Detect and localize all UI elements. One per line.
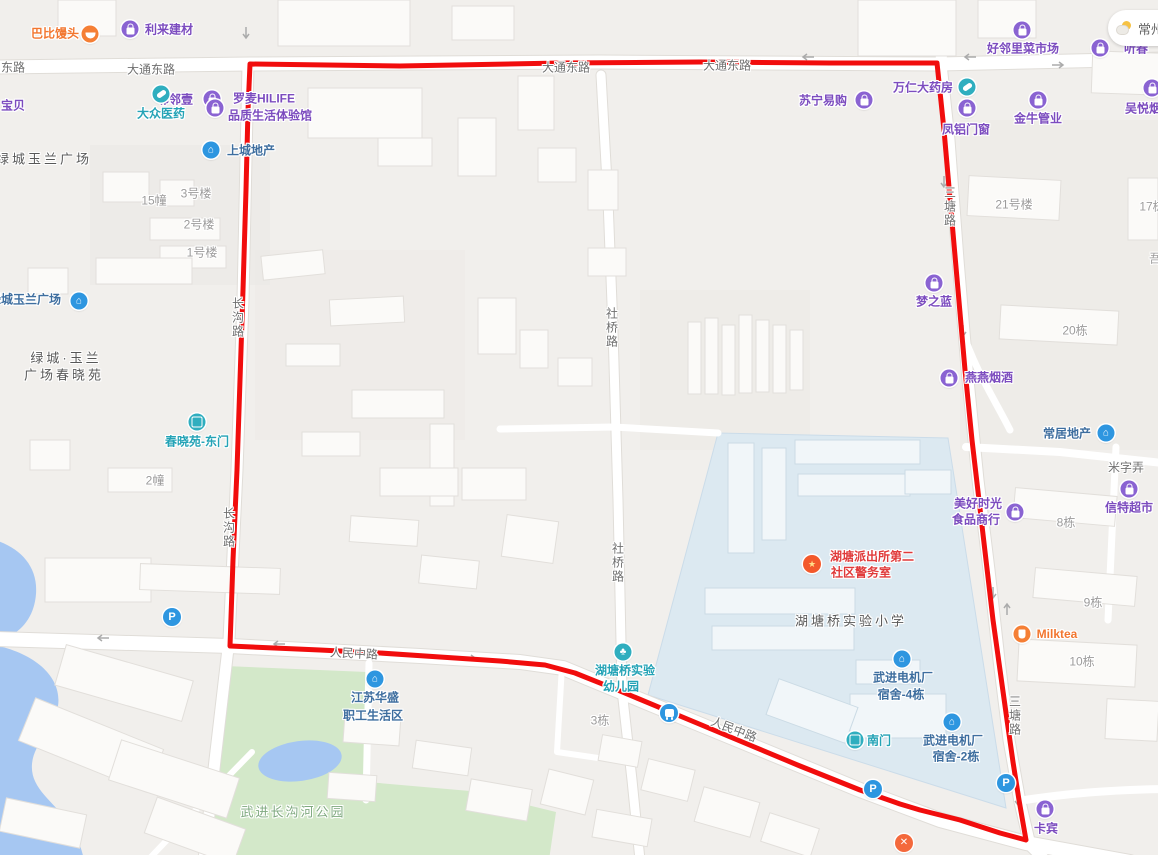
poi-luomai-2-label[interactable]: 品质生活体验馆 [228, 107, 312, 124]
poi-lvcheng-plaza-2-label[interactable]: 绿城玉兰广场 [0, 291, 61, 308]
road-datong-2-label: 大通东路 [542, 59, 590, 76]
road-santang-1-label: 三塘路 [942, 186, 959, 228]
poi-dianji-2-1-label[interactable]: 武进电机厂 [923, 732, 983, 749]
haolinli-market-icon[interactable] [1014, 22, 1031, 39]
road-donglu-label: 东路 [1, 59, 25, 76]
bldg-9dong-label: 9栋 [1084, 594, 1103, 611]
poi-kindergarten-1-label[interactable]: 湖塘桥实验 [595, 662, 655, 679]
poi-changju-estate-label[interactable]: 常居地产 [1043, 425, 1091, 442]
bldg-1haolou-label: 1号楼 [187, 244, 218, 261]
poi-suning-label[interactable]: 苏宁易购 [799, 92, 847, 109]
road-changgou-1-label: 长沟路 [230, 297, 247, 339]
poi-fenglv-label[interactable]: 凤铝门窗 [942, 121, 990, 138]
road-changgou-2-label: 长沟路 [221, 507, 238, 549]
lvcheng-plaza-icon[interactable]: ⌂ [71, 293, 88, 310]
poi-meihao-1-label[interactable]: 美好时光 [954, 495, 1002, 512]
road-datong-3-label: 大通东路 [703, 57, 751, 74]
weather-sun-cloud-icon [1117, 21, 1133, 35]
bldg-21haolou-label: 21号楼 [995, 196, 1032, 213]
dazhong-pharmacy-icon[interactable] [153, 86, 170, 103]
bldg-10dong-label: 10栋 [1069, 653, 1094, 670]
area-lvcheng-plaza-label: 绿城玉兰广场 [0, 149, 92, 168]
meihao-icon[interactable] [1007, 504, 1024, 521]
suning-icon[interactable] [856, 92, 873, 109]
shangcheng-estate-icon[interactable]: ⌂ [203, 142, 220, 159]
poi-dianji-4-2-label[interactable]: 宿舍-4栋 [878, 686, 925, 703]
yanyan-icon[interactable] [941, 370, 958, 387]
luomai-icon[interactable] [207, 100, 224, 117]
area-changgou-park-label: 武进长沟河公园 [240, 802, 345, 821]
wuyue-icon[interactable] [1144, 80, 1158, 97]
label-layer: 东路大通东路大通东路大通东路长沟路长沟路社桥路社桥路三塘路三塘路人民中路人民中路… [0, 0, 1158, 855]
area-lvcheng-chunxiao-2-label: 广场春晓苑 [24, 365, 104, 384]
poi-yanyan-label[interactable]: 燕燕烟酒 [965, 369, 1013, 386]
bldg-20dong-label: 20栋 [1062, 322, 1087, 339]
parking-2-icon[interactable]: P [864, 780, 882, 798]
bldg-2zhuang-label: 2幢 [146, 472, 165, 489]
south-gate-icon[interactable] [847, 732, 864, 749]
bldg-17dong-label: 17栋 [1139, 198, 1158, 215]
weather-widget[interactable]: 常州 [1108, 10, 1158, 46]
tingchun-icon[interactable] [1092, 40, 1109, 57]
road-sheqiao-1-label: 社桥路 [604, 307, 621, 349]
poi-police-2-label[interactable]: 社区警务室 [831, 564, 891, 581]
poi-dianji-2-2-label[interactable]: 宿舍-2栋 [933, 748, 980, 765]
bldg-8dong-label: 8栋 [1057, 514, 1076, 531]
road-sheqiao-2-label: 社桥路 [610, 542, 627, 584]
mengzhilan-icon[interactable] [926, 275, 943, 292]
poi-dianji-4-1-label[interactable]: 武进电机厂 [873, 669, 933, 686]
poi-haolinli-market-label[interactable]: 好邻里菜市场 [987, 40, 1059, 57]
xinte-super-icon[interactable] [1121, 481, 1138, 498]
lilai-jiancai-icon[interactable] [122, 21, 139, 38]
parking-3-icon[interactable]: P [997, 774, 1015, 792]
bus-stop-icon[interactable] [660, 704, 678, 722]
kindergarten-icon[interactable]: ♣ [615, 644, 632, 661]
bldg-wu-label: 吾 [1149, 250, 1158, 267]
police-badge-icon[interactable]: ★ [803, 555, 821, 573]
map-canvas[interactable]: 东路大通东路大通东路大通东路长沟路长沟路社桥路社桥路三塘路三塘路人民中路人民中路… [0, 0, 1158, 855]
kabin-icon[interactable] [1037, 801, 1054, 818]
poi-babi-mantou-label[interactable]: 巴比馒头 [31, 25, 79, 42]
poi-jinniu-label[interactable]: 金牛管业 [1014, 110, 1062, 127]
poi-jiangsu-huasheng-1-label[interactable]: 江苏华盛 [351, 689, 399, 706]
chunxiao-east-gate-icon[interactable] [189, 414, 206, 431]
parking-1-icon[interactable]: P [163, 608, 181, 626]
poi-dazhong-pharmacy-label[interactable]: 大众医药 [137, 105, 185, 122]
poi-meihao-2-label[interactable]: 食品商行 [952, 511, 1000, 528]
road-datong-1-label: 大通东路 [127, 61, 175, 78]
poi-kabin-label[interactable]: 卡宾 [1034, 820, 1058, 837]
poi-south-gate-label[interactable]: 南门 [867, 732, 891, 749]
poi-kindergarten-2-label[interactable]: 幼儿园 [603, 678, 639, 695]
poi-wuyue-label[interactable]: 吴悦烟酒 [1125, 100, 1158, 117]
wanren-pharmacy-icon[interactable] [959, 79, 976, 96]
poi-luomai-1-label[interactable]: 罗麦HILIFE [233, 90, 295, 107]
poi-shangcheng-estate-label[interactable]: 上城地产 [227, 142, 275, 159]
area-hutangqiao-primary-school-label: 湖塘桥实验小学 [795, 611, 907, 630]
bldg-15zhuang-label: 15幢 [141, 192, 166, 209]
bldg-3haolou-label: 3号楼 [181, 185, 212, 202]
babi-mantou-icon[interactable] [82, 26, 99, 43]
bldg-3dong-label: 3栋 [591, 712, 610, 729]
poi-milktea-label[interactable]: Milktea [1037, 627, 1078, 641]
road-mizi-label: 米字弄 [1108, 459, 1144, 476]
dianji-dorm-4-icon[interactable]: ⌂ [894, 651, 911, 668]
poi-xinte-super-label[interactable]: 信特超市 [1105, 499, 1153, 516]
jinniu-icon[interactable] [1030, 92, 1047, 109]
weather-city: 常州 [1138, 19, 1158, 38]
milktea-icon[interactable] [1014, 626, 1031, 643]
poi-lilai-jiancai-label[interactable]: 利来建材 [145, 21, 193, 38]
road-renmin-1-label: 人民中路 [330, 643, 379, 662]
poi-mengzhilan-label[interactable]: 梦之蓝 [916, 293, 952, 310]
road-renmin-2-label: 人民中路 [709, 712, 760, 745]
poi-police-1-label[interactable]: 湖塘派出所第二 [830, 548, 914, 565]
restaurant-icon[interactable]: ✕ [895, 834, 913, 852]
poi-baobei-label[interactable]: 宝贝 [1, 97, 25, 114]
poi-wanren-pharmacy-label[interactable]: 万仁大药房 [893, 79, 953, 96]
fenglv-icon[interactable] [959, 100, 976, 117]
bldg-2haolou-label: 2号楼 [184, 216, 215, 233]
poi-jiangsu-huasheng-2-label[interactable]: 职工生活区 [343, 707, 403, 724]
jiangsu-huasheng-icon[interactable]: ⌂ [367, 671, 384, 688]
dianji-dorm-2-icon[interactable]: ⌂ [944, 714, 961, 731]
road-santang-2-label: 三塘路 [1007, 695, 1024, 737]
poi-chunxiao-east-gate-label[interactable]: 春晓苑-东门 [165, 433, 229, 450]
changju-estate-icon[interactable]: ⌂ [1098, 425, 1115, 442]
